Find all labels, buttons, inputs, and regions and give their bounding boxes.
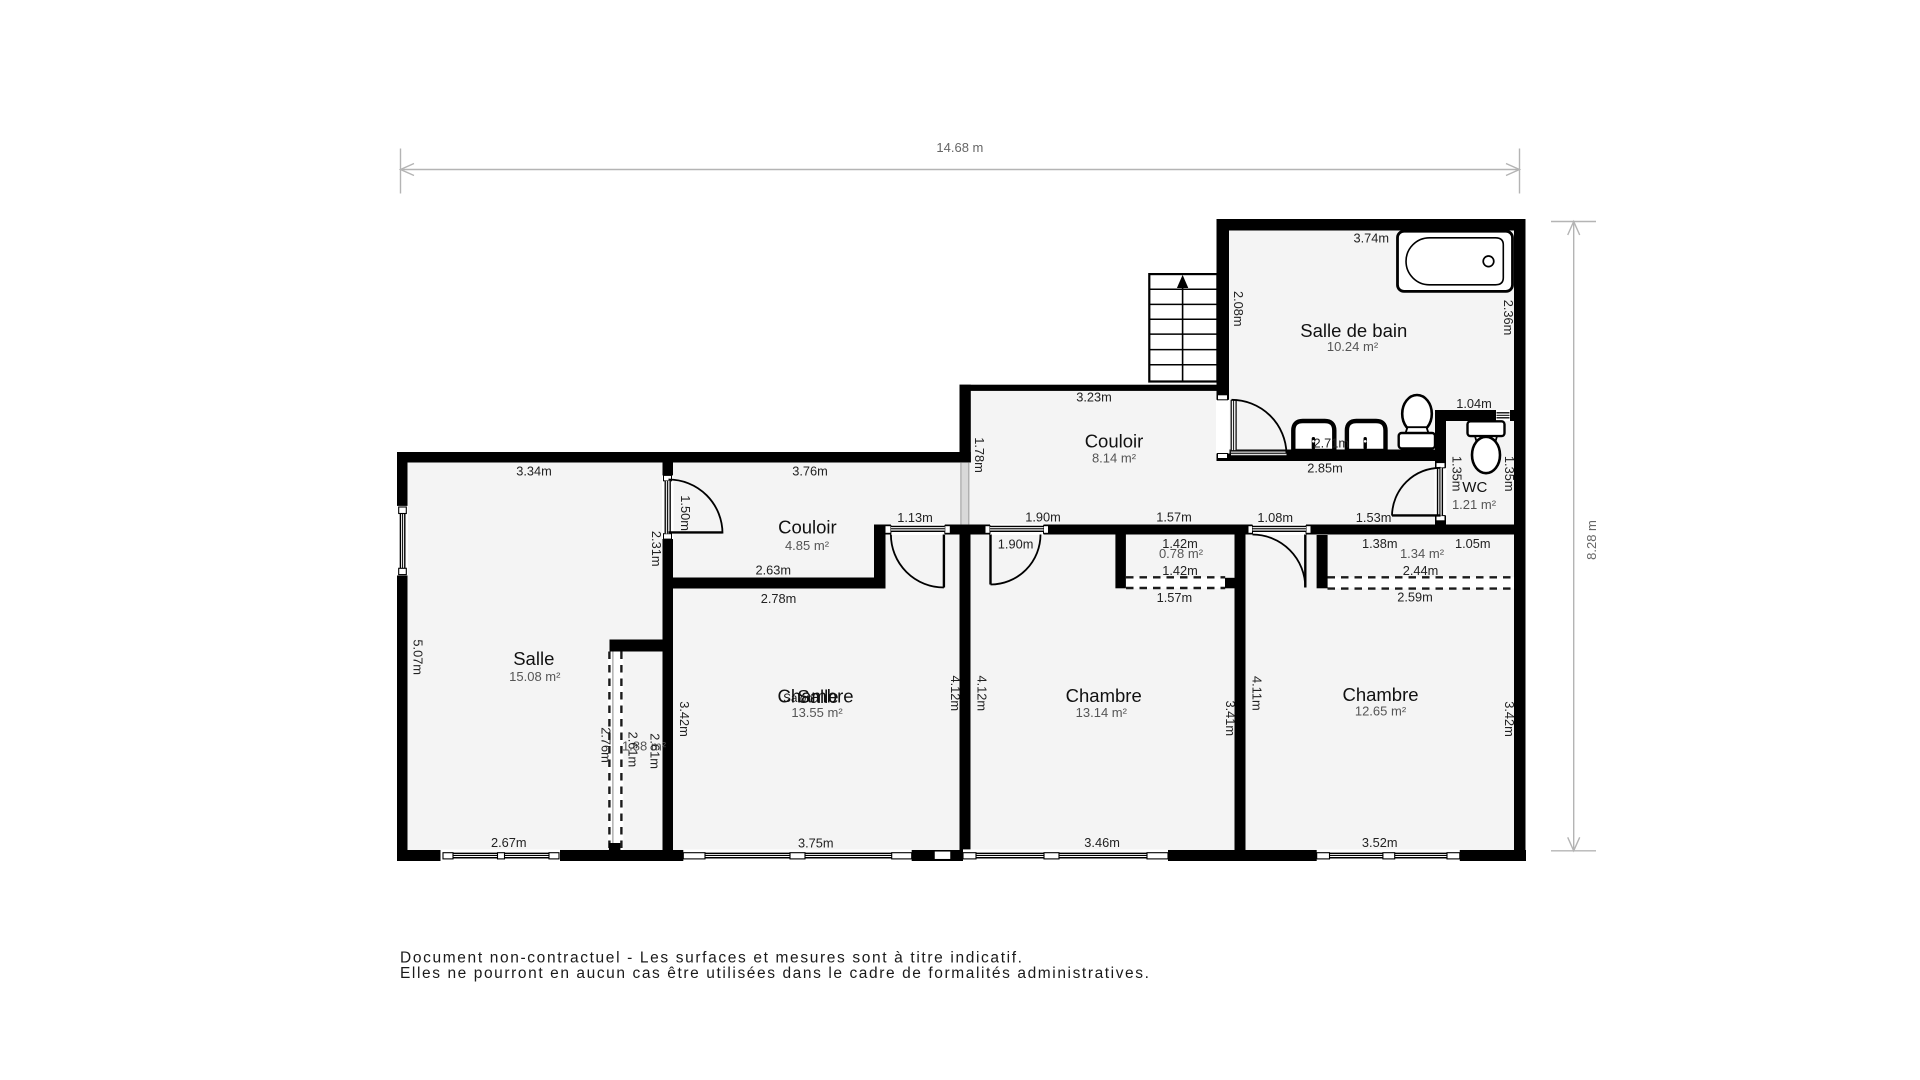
svg-text:2.85m: 2.85m	[1307, 460, 1343, 475]
svg-text:1.05m: 1.05m	[1455, 536, 1491, 551]
svg-text:2.71m: 2.71m	[1314, 435, 1350, 450]
svg-text:8.14 m²: 8.14 m²	[1092, 450, 1137, 465]
svg-text:3.41m: 3.41m	[1223, 701, 1238, 737]
svg-text:12.65 m²: 12.65 m²	[1355, 704, 1407, 719]
svg-text:1.50m: 1.50m	[678, 495, 693, 531]
svg-text:2.78m: 2.78m	[761, 591, 797, 606]
svg-text:2.61m: 2.61m	[625, 732, 640, 768]
svg-text:Chambre: Chambre	[1342, 684, 1418, 705]
svg-text:1.57m: 1.57m	[1157, 590, 1193, 605]
svg-text:2.59m: 2.59m	[1397, 590, 1433, 605]
svg-text:3.52m: 3.52m	[1362, 835, 1398, 850]
svg-text:Salle: Salle	[513, 648, 554, 669]
svg-text:1.21 m²: 1.21 m²	[1452, 497, 1497, 512]
svg-text:1.35m: 1.35m	[1502, 456, 1517, 492]
svg-text:2.61m: 2.61m	[648, 733, 663, 769]
svg-text:Chambre: Chambre	[1066, 685, 1142, 706]
svg-text:1.08m: 1.08m	[1257, 510, 1293, 525]
svg-text:13.14 m²: 13.14 m²	[1076, 705, 1128, 720]
svg-text:2.44m: 2.44m	[1403, 563, 1439, 578]
svg-text:1.90m: 1.90m	[998, 537, 1034, 552]
svg-text:Couloir: Couloir	[1085, 431, 1144, 452]
svg-text:3.42m: 3.42m	[1502, 701, 1517, 737]
svg-text:1.42m: 1.42m	[1162, 563, 1198, 578]
svg-text:1.38m: 1.38m	[1362, 536, 1398, 551]
svg-text:4.12m: 4.12m	[948, 676, 963, 712]
svg-text:2.76m: 2.76m	[599, 727, 614, 763]
svg-text:2.63m: 2.63m	[756, 563, 792, 578]
svg-text:14.68 m: 14.68 m	[936, 140, 983, 155]
svg-text:1.13m: 1.13m	[897, 510, 933, 525]
svg-text:WC: WC	[1462, 479, 1487, 496]
svg-text:1.78m: 1.78m	[972, 437, 987, 473]
svg-text:3.74m: 3.74m	[1354, 230, 1390, 245]
svg-text:Elles ne pourront en aucun cas: Elles ne pourront en aucun cas être util…	[400, 965, 1151, 982]
svg-text:4.12m: 4.12m	[975, 676, 990, 712]
svg-text:1.57m: 1.57m	[1156, 510, 1192, 525]
svg-text:Chambre: Chambre	[777, 685, 853, 706]
svg-text:2.36m: 2.36m	[1501, 300, 1516, 336]
svg-text:3.76m: 3.76m	[792, 464, 828, 479]
svg-text:13.55 m²: 13.55 m²	[791, 705, 843, 720]
svg-text:Salle de bain: Salle de bain	[1300, 320, 1407, 341]
svg-text:3.23m: 3.23m	[1076, 390, 1112, 405]
svg-text:3.42m: 3.42m	[677, 701, 692, 737]
svg-text:1.35m: 1.35m	[1450, 456, 1465, 492]
svg-text:3.75m: 3.75m	[798, 835, 834, 850]
svg-text:1.04m: 1.04m	[1456, 396, 1492, 411]
svg-text:10.24 m²: 10.24 m²	[1327, 339, 1379, 354]
svg-text:1.53m: 1.53m	[1356, 510, 1392, 525]
svg-text:15.08 m²: 15.08 m²	[509, 669, 561, 684]
svg-text:1.34 m²: 1.34 m²	[1400, 546, 1445, 561]
svg-text:3.34m: 3.34m	[516, 463, 552, 478]
svg-text:1.90m: 1.90m	[1025, 510, 1061, 525]
svg-text:2.67m: 2.67m	[491, 835, 527, 850]
svg-text:Couloir: Couloir	[778, 517, 837, 538]
svg-text:2.31m: 2.31m	[649, 531, 664, 567]
svg-text:5.07m: 5.07m	[410, 639, 425, 675]
svg-text:2.08m: 2.08m	[1231, 291, 1246, 327]
svg-text:3.46m: 3.46m	[1084, 835, 1120, 850]
svg-text:8.28 m: 8.28 m	[1584, 520, 1599, 560]
svg-text:4.11m: 4.11m	[1250, 676, 1265, 711]
svg-text:4.85 m²: 4.85 m²	[785, 538, 830, 553]
svg-text:1.42m: 1.42m	[1162, 536, 1198, 551]
